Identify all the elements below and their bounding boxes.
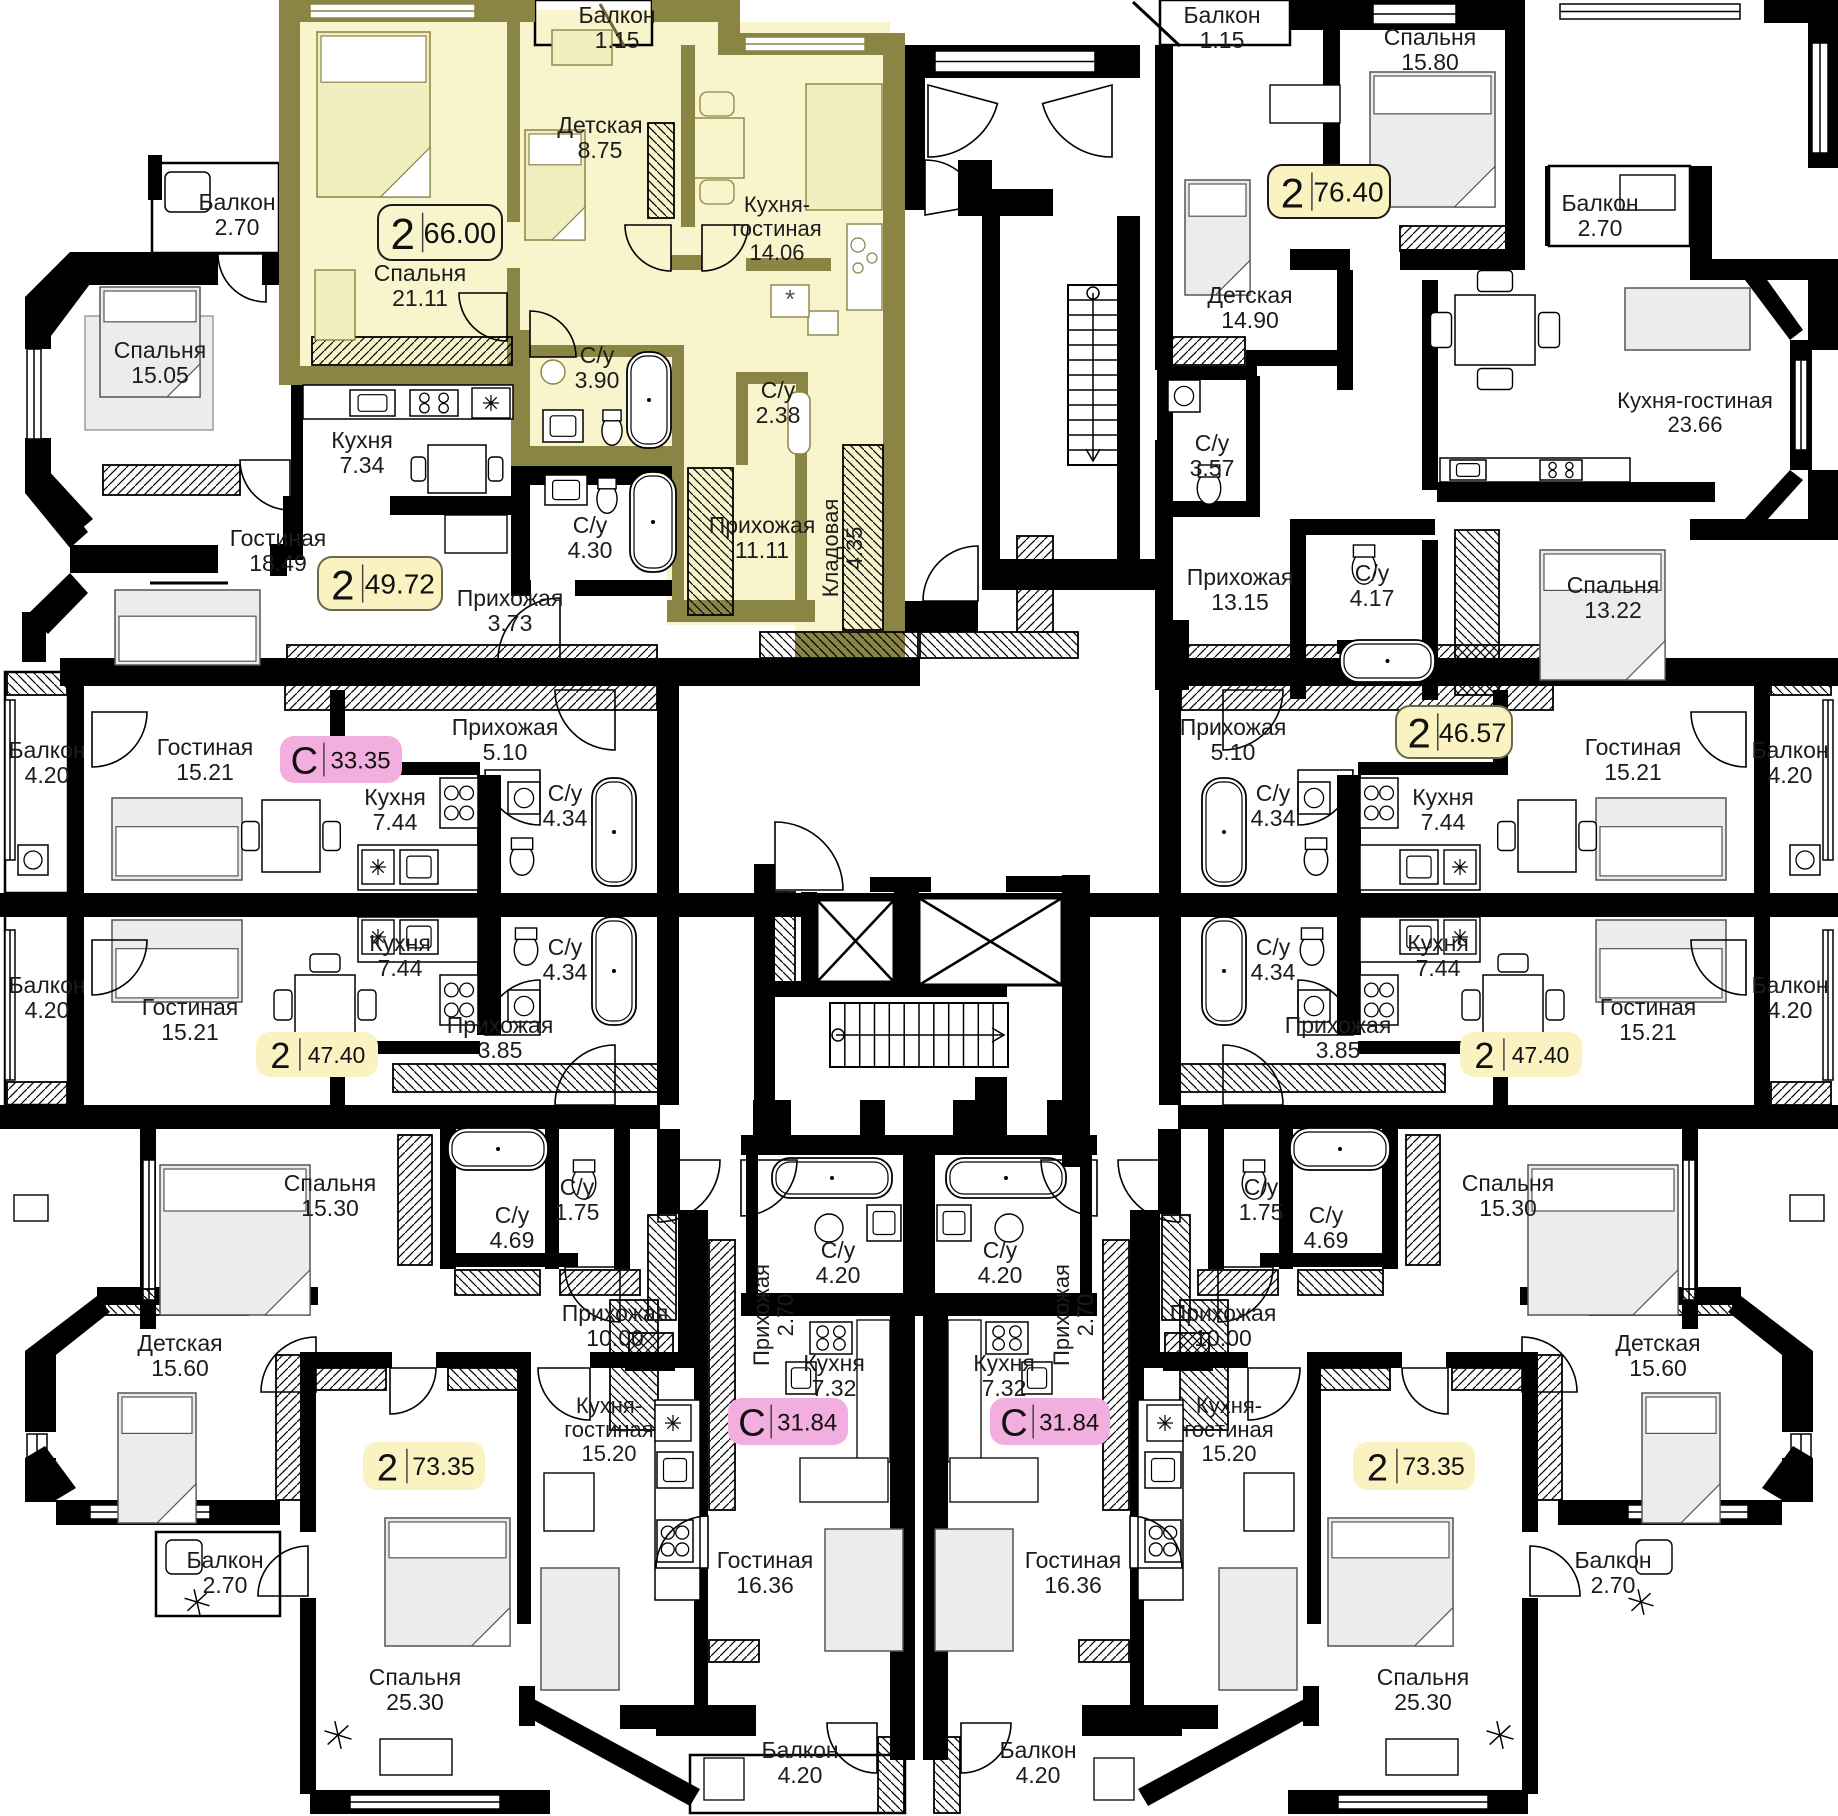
svg-text:С/у4.34: С/у4.34 — [543, 934, 588, 985]
svg-text:76.40: 76.40 — [1313, 177, 1383, 208]
svg-text:2: 2 — [270, 1035, 290, 1076]
svg-text:*: * — [785, 284, 795, 314]
svg-text:Кухня7.44: Кухня7.44 — [369, 930, 431, 981]
svg-text:73.35: 73.35 — [1402, 1453, 1465, 1481]
svg-text:С/у4.69: С/у4.69 — [490, 1202, 535, 1253]
svg-text:47.40: 47.40 — [308, 1042, 366, 1068]
svg-text:Кухня7.32: Кухня7.32 — [803, 1350, 865, 1401]
svg-text:С/у4.69: С/у4.69 — [1304, 1202, 1349, 1253]
svg-text:2: 2 — [1474, 1035, 1494, 1076]
svg-text:31.84: 31.84 — [1039, 1409, 1099, 1436]
svg-text:С: С — [291, 741, 318, 783]
svg-text:2: 2 — [391, 210, 415, 259]
svg-text:С/у3.57: С/у3.57 — [1190, 430, 1235, 481]
svg-text:2: 2 — [377, 1447, 398, 1489]
svg-text:С/у4.34: С/у4.34 — [1251, 780, 1296, 831]
svg-text:Кухня7.44: Кухня7.44 — [1412, 784, 1474, 835]
svg-text:С/у4.17: С/у4.17 — [1350, 560, 1395, 611]
svg-text:Кухня7.34: Кухня7.34 — [331, 427, 393, 478]
svg-text:2: 2 — [1281, 169, 1304, 216]
svg-text:49.72: 49.72 — [365, 569, 435, 600]
svg-text:С: С — [1000, 1403, 1027, 1445]
svg-text:66.00: 66.00 — [424, 218, 497, 250]
svg-text:С/у4.30: С/у4.30 — [568, 512, 613, 563]
svg-text:С/у1.75: С/у1.75 — [555, 1174, 600, 1225]
svg-text:С: С — [738, 1403, 765, 1445]
svg-text:73.35: 73.35 — [412, 1453, 475, 1481]
svg-text:2: 2 — [331, 561, 354, 608]
svg-text:Кухня7.32: Кухня7.32 — [973, 1350, 1035, 1401]
svg-text:С/у4.20: С/у4.20 — [978, 1237, 1023, 1288]
svg-text:С/у4.34: С/у4.34 — [1251, 934, 1296, 985]
svg-text:С/у4.20: С/у4.20 — [816, 1237, 861, 1288]
svg-text:С/у2.38: С/у2.38 — [756, 377, 801, 428]
svg-text:С/у1.75: С/у1.75 — [1239, 1174, 1284, 1225]
svg-text:2: 2 — [1408, 710, 1431, 757]
svg-text:46.57: 46.57 — [1439, 718, 1507, 748]
svg-text:31.84: 31.84 — [777, 1409, 837, 1436]
svg-text:47.40: 47.40 — [1512, 1042, 1570, 1068]
svg-text:33.35: 33.35 — [330, 747, 390, 774]
svg-text:С/у4.34: С/у4.34 — [543, 780, 588, 831]
svg-text:Кухня7.44: Кухня7.44 — [1407, 930, 1469, 981]
svg-text:2: 2 — [1367, 1447, 1388, 1489]
svg-text:С/у3.90: С/у3.90 — [575, 342, 620, 393]
svg-text:Кухня7.44: Кухня7.44 — [364, 784, 426, 835]
